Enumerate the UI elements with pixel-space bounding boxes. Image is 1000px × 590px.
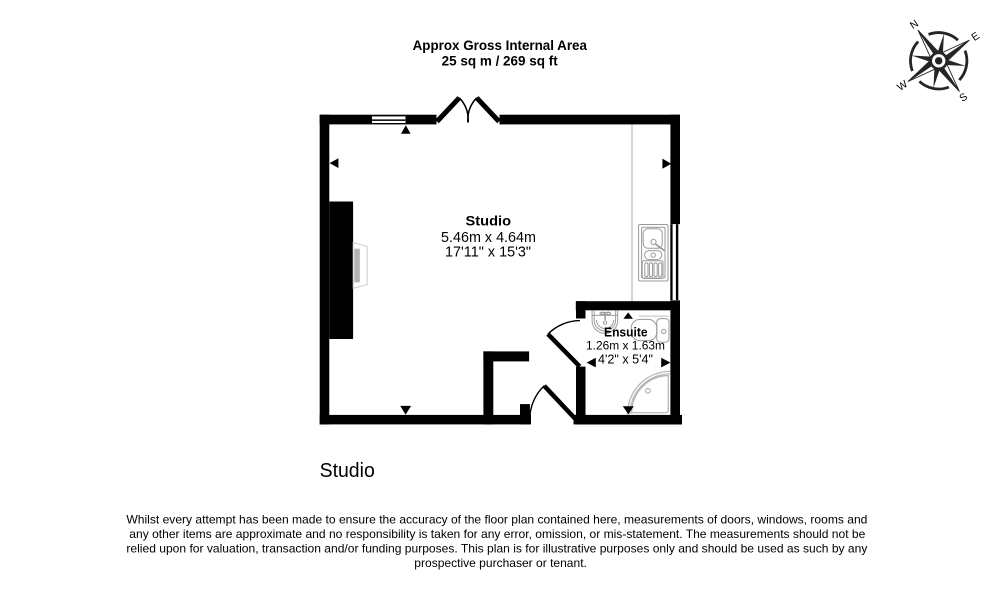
svg-text:prospective purchaser or tenan: prospective purchaser or tenant. xyxy=(414,556,587,570)
svg-text:Whilst every attempt has been: Whilst every attempt has been made to en… xyxy=(126,512,867,526)
svg-text:17'11" x 15'3": 17'11" x 15'3" xyxy=(445,245,531,261)
svg-text:any other items are approximat: any other items are approximate and no r… xyxy=(129,527,865,541)
svg-text:1.26m x 1.63m: 1.26m x 1.63m xyxy=(586,338,665,352)
svg-text:Ensuite: Ensuite xyxy=(604,325,648,339)
svg-text:25 sq m / 269 sq ft: 25 sq m / 269 sq ft xyxy=(442,53,558,69)
svg-text:relied upon for valuation, tra: relied upon for valuation, transaction a… xyxy=(126,542,867,556)
svg-text:5.46m x 4.64m: 5.46m x 4.64m xyxy=(441,230,536,246)
svg-text:Studio: Studio xyxy=(320,460,375,482)
svg-text:4'2" x 5'4": 4'2" x 5'4" xyxy=(598,352,653,366)
svg-text:Studio: Studio xyxy=(466,213,512,229)
svg-text:Approx Gross Internal Area: Approx Gross Internal Area xyxy=(413,37,587,53)
